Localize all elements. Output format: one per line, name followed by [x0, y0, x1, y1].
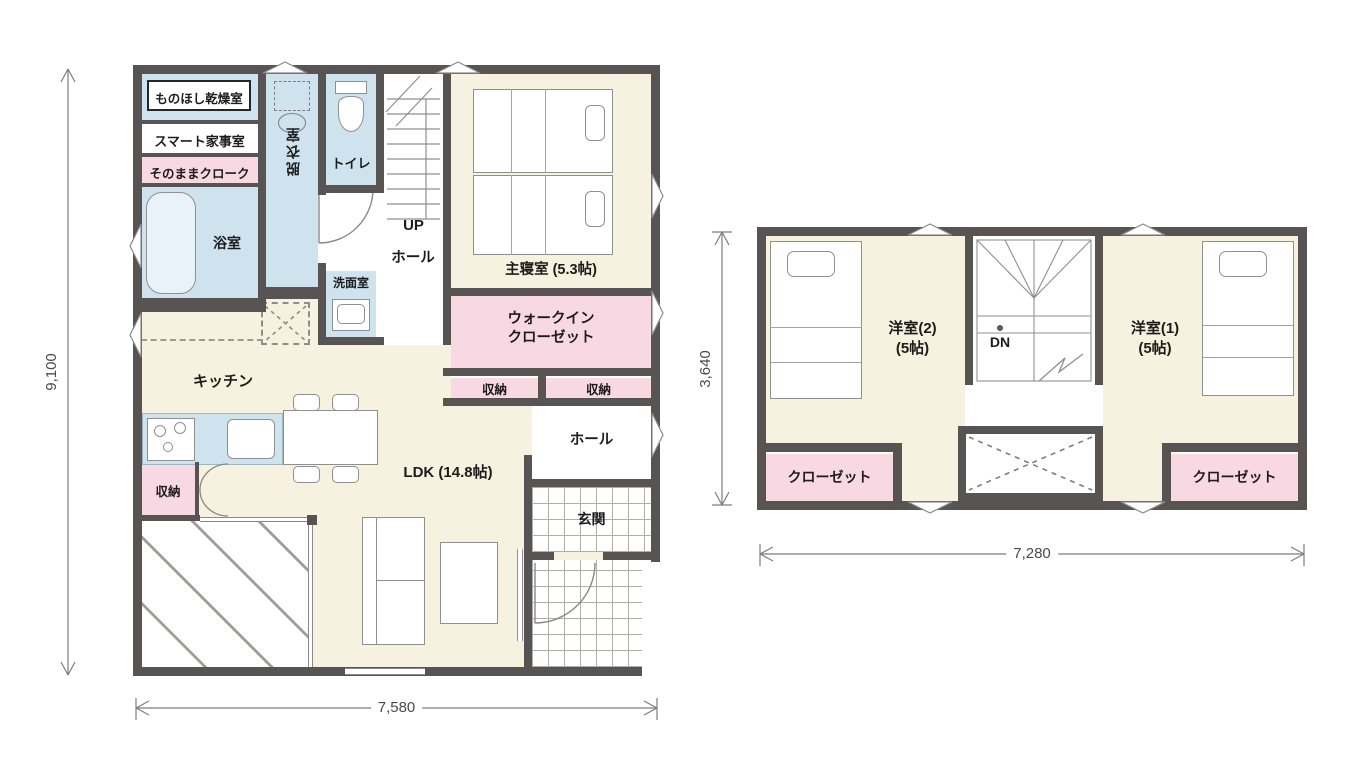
- label-bedroom1: 洋室(1) (5帖): [1105, 319, 1205, 358]
- window-marker-icon: [907, 501, 953, 514]
- sink-icon: [227, 419, 275, 459]
- wall-segment: [443, 398, 651, 406]
- wall-segment: [603, 552, 651, 560]
- label-wic-line1: ウォークイン: [508, 311, 595, 327]
- dimension-height-floor2: 3,640: [698, 229, 738, 508]
- label-closet-right: クローゼット: [1171, 467, 1298, 487]
- pillow-icon: [585, 105, 605, 141]
- label-undressing-room: 脱衣室: [283, 125, 303, 176]
- deck-post: [307, 515, 317, 525]
- stairs-up-icon: [384, 74, 443, 264]
- double-door-arc-icon: [199, 463, 230, 517]
- floor1-plan: ものほし乾燥室 スマート家事室 そのままクローク 浴室 脱衣室 トイレ UP ホ…: [133, 65, 660, 676]
- chair-icon: [293, 394, 320, 411]
- void-opening: [958, 426, 1103, 501]
- window-marker-icon: [129, 223, 142, 269]
- wall-segment: [893, 443, 902, 501]
- label-hall-lower: ホール: [532, 428, 651, 449]
- chair-icon: [332, 466, 359, 483]
- toilet-bowl-icon: [338, 96, 364, 132]
- wall-segment: [141, 153, 258, 157]
- label-toilet: トイレ: [326, 153, 376, 172]
- wall-segment: [757, 227, 766, 510]
- label-stairs-down: DN: [975, 334, 1025, 350]
- dining-table-icon: [283, 410, 378, 465]
- ldk-bottom-window: [345, 668, 425, 675]
- label-closet-left: クローゼット: [766, 467, 893, 487]
- toilet-tank-icon: [335, 81, 367, 94]
- wall-segment: [965, 236, 973, 385]
- dimension-height-floor1-value: 9,100: [43, 346, 60, 398]
- wall-segment: [141, 183, 258, 187]
- wall-segment: [141, 515, 200, 521]
- sliding-door-icon: [517, 549, 523, 641]
- kitchen-dashed-line: [141, 339, 263, 341]
- label-storage-c: 収納: [141, 481, 195, 500]
- stove-icon: [147, 418, 195, 461]
- chair-icon: [293, 466, 320, 483]
- dimension-width-floor2-value: 7,280: [1006, 545, 1058, 562]
- label-sonomama-cloak: そのままクローク: [141, 163, 258, 182]
- appliance-space-icon: [261, 302, 310, 345]
- deck-window-right: [308, 521, 313, 667]
- bed-line: [1202, 325, 1294, 326]
- deck-window-top: [200, 517, 313, 522]
- bed-line: [545, 175, 546, 255]
- wall-segment: [318, 185, 384, 193]
- stove-burner-icon: [154, 425, 166, 437]
- label-drying-room: ものほし乾燥室: [147, 88, 251, 107]
- wall-segment: [318, 74, 326, 195]
- wall-segment: [1162, 443, 1171, 501]
- stove-burner-icon: [163, 442, 173, 452]
- label-entrance: 玄関: [532, 509, 651, 529]
- stairs-down-icon: [973, 236, 1095, 385]
- wall-segment: [538, 368, 546, 406]
- entrance-door-arc-icon: [534, 562, 597, 625]
- label-storage-b: 収納: [546, 379, 651, 398]
- washbasin-bowl-icon: [337, 304, 365, 324]
- wall-segment: [133, 65, 660, 74]
- pillow-icon: [1219, 251, 1267, 277]
- window-marker-icon: [651, 173, 664, 219]
- window-marker-icon: [129, 312, 142, 358]
- dimension-width-floor1: 7,580: [133, 696, 660, 726]
- window-marker-icon: [435, 61, 481, 74]
- wall-segment: [443, 368, 651, 376]
- bed-line: [770, 327, 862, 328]
- wall-segment: [443, 288, 651, 296]
- bed-line: [545, 89, 546, 173]
- wall-segment: [318, 337, 384, 345]
- dimension-width-floor2: 7,280: [757, 542, 1307, 572]
- coffee-table-icon: [440, 542, 498, 624]
- label-ldk: LDK (14.8帖): [368, 461, 528, 482]
- label-storage-a: 収納: [451, 379, 538, 398]
- label-wic: ウォークイン クローゼット: [451, 310, 651, 348]
- label-stairs-up: UP: [384, 217, 443, 234]
- window-marker-icon: [651, 290, 664, 336]
- label-hall-upper: ホール: [373, 246, 453, 267]
- label-bedroom1-line2: (5帖): [1138, 340, 1171, 357]
- label-wic-line2: クローゼット: [508, 330, 595, 346]
- window-marker-icon: [1120, 223, 1166, 236]
- window-marker-icon: [651, 412, 664, 458]
- bed-line: [1202, 357, 1294, 358]
- stove-burner-icon: [174, 422, 186, 434]
- stairs-dn-dot: [997, 325, 1003, 331]
- sofa-cushion-line: [376, 580, 425, 581]
- label-kitchen: キッチン: [168, 370, 278, 391]
- wall-segment: [1095, 236, 1103, 385]
- label-bedroom1-line1: 洋室(1): [1131, 320, 1179, 337]
- window-marker-icon: [1120, 501, 1166, 514]
- wall-segment: [258, 74, 266, 312]
- wall-segment: [1162, 443, 1298, 452]
- washer-icon: [274, 81, 310, 111]
- wall-segment: [766, 443, 902, 452]
- dimension-height-floor2-value: 3,640: [697, 343, 714, 395]
- label-smart-utility: スマート家事室: [141, 131, 258, 150]
- wall-segment: [524, 552, 554, 560]
- label-bedroom2-line1: 洋室(2): [888, 320, 936, 337]
- wall-segment: [141, 298, 258, 312]
- wall-segment: [266, 287, 318, 299]
- pillow-icon: [787, 251, 835, 277]
- label-bedroom2-line2: (5帖): [896, 340, 929, 357]
- label-bathroom: 浴室: [196, 233, 258, 253]
- wall-segment: [524, 479, 651, 487]
- bed-line: [511, 89, 512, 173]
- wall-segment: [141, 120, 258, 124]
- wall-segment: [757, 501, 1307, 510]
- door-arc-icon: [318, 188, 374, 244]
- bed-line: [511, 175, 512, 255]
- floor2-plan: 洋室(2) (5帖) 洋室(1) (5帖) DN クローゼット クローゼット: [757, 227, 1307, 510]
- porch-side-patch: [642, 560, 660, 676]
- wall-segment: [1298, 227, 1307, 510]
- deck-terrace: [141, 521, 313, 667]
- window-marker-icon: [907, 223, 953, 236]
- floor-plan-canvas: ものほし乾燥室 スマート家事室 そのままクローク 浴室 脱衣室 トイレ UP ホ…: [0, 0, 1360, 765]
- dimension-width-floor1-value: 7,580: [371, 699, 423, 716]
- chair-icon: [332, 394, 359, 411]
- bathtub-icon: [146, 192, 196, 294]
- pillow-icon: [585, 191, 605, 227]
- wall-segment: [757, 227, 1307, 236]
- wall-segment: [376, 74, 384, 193]
- window-marker-icon: [262, 61, 308, 74]
- label-bedroom2: 洋室(2) (5帖): [855, 319, 970, 358]
- label-master-bedroom: 主寝室 (5.3帖): [451, 258, 651, 279]
- wall-segment: [443, 74, 451, 345]
- label-washroom: 洗面室: [324, 274, 378, 291]
- dimension-height-floor1: 9,100: [40, 66, 80, 678]
- bed-line: [770, 362, 862, 363]
